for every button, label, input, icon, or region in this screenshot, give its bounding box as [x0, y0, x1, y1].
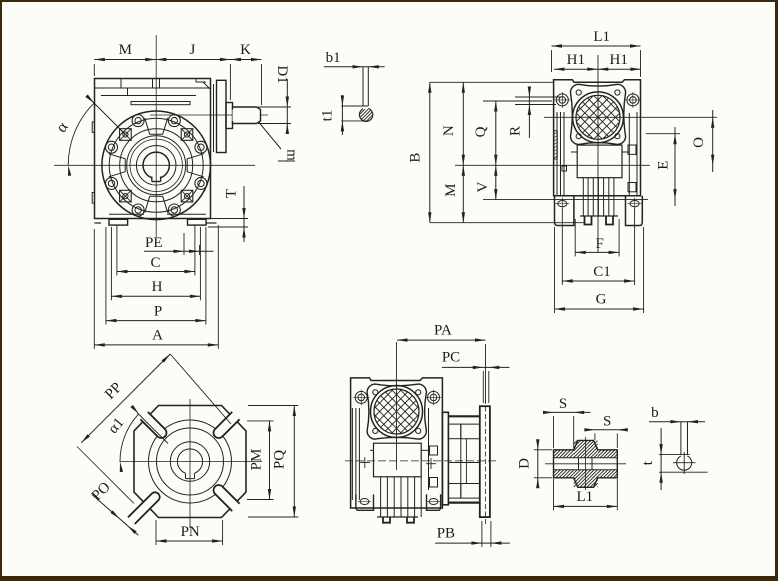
svg-text:V: V — [475, 182, 491, 193]
svg-text:b1: b1 — [326, 50, 341, 66]
svg-text:S: S — [603, 414, 611, 430]
svg-text:J: J — [189, 42, 195, 58]
svg-text:PQ: PQ — [272, 450, 288, 469]
svg-text:PB: PB — [437, 526, 455, 542]
svg-text:M: M — [119, 42, 132, 58]
svg-text:B: B — [408, 153, 424, 163]
svg-text:P: P — [154, 304, 162, 320]
svg-text:PO: PO — [89, 479, 114, 504]
svg-text:PC: PC — [442, 350, 460, 366]
svg-text:H1: H1 — [610, 52, 628, 68]
svg-text:α1: α1 — [105, 415, 127, 437]
svg-text:PP: PP — [102, 380, 125, 403]
svg-text:PM: PM — [249, 449, 265, 471]
svg-text:C1: C1 — [593, 264, 611, 280]
svg-text:m: m — [284, 149, 300, 161]
svg-text:L1: L1 — [593, 29, 610, 45]
svg-text:G: G — [596, 292, 607, 308]
svg-text:R: R — [508, 126, 524, 136]
svg-text:PE: PE — [145, 235, 163, 251]
svg-text:T: T — [224, 189, 240, 198]
svg-text:E: E — [656, 161, 672, 170]
svg-text:M: M — [443, 184, 459, 197]
svg-text:Q: Q — [473, 126, 489, 137]
svg-text:F: F — [596, 236, 604, 252]
svg-text:t1: t1 — [320, 110, 336, 122]
svg-text:PN: PN — [181, 524, 200, 540]
svg-text:t: t — [640, 460, 656, 465]
svg-text:b: b — [651, 405, 659, 421]
svg-text:S: S — [559, 396, 567, 412]
svg-text:H1: H1 — [567, 52, 585, 68]
svg-text:N: N — [441, 125, 457, 136]
svg-text:PA: PA — [434, 323, 452, 339]
svg-text:O: O — [691, 137, 707, 148]
svg-text:H: H — [152, 279, 163, 295]
svg-text:L1: L1 — [576, 489, 593, 505]
svg-text:A: A — [152, 328, 163, 344]
svg-text:D1: D1 — [274, 65, 290, 83]
svg-text:K: K — [240, 42, 251, 58]
svg-text:α: α — [53, 119, 72, 136]
svg-text:C: C — [150, 255, 160, 271]
svg-text:D: D — [517, 458, 533, 469]
